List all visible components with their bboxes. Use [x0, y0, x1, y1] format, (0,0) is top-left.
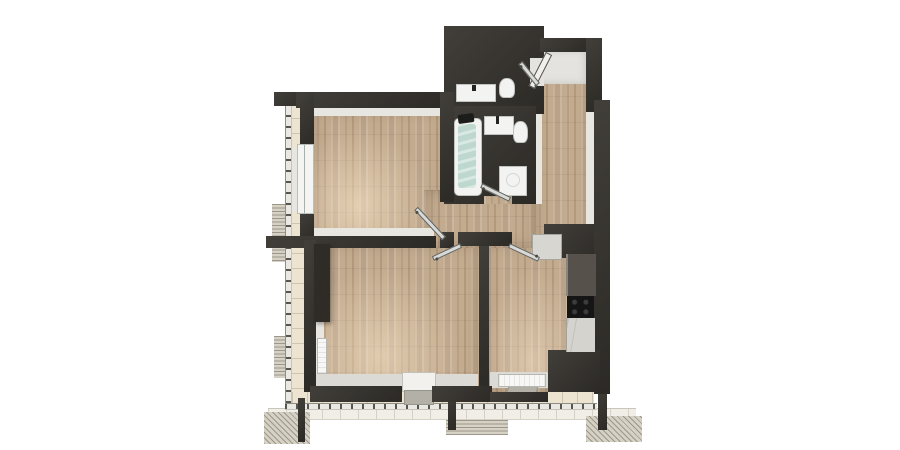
wc-vanity-sink [456, 84, 496, 102]
bathroom-sink-vanity [484, 116, 514, 135]
wall-bedroom-kitchen-divider [479, 246, 489, 392]
wall-hall-tee [458, 232, 512, 246]
kitchen-counter-cabinet [566, 254, 596, 296]
glass-balustrade-left [285, 104, 292, 408]
lining-living-bottom [314, 228, 434, 236]
bathtub-water [458, 124, 476, 188]
lining-living-top [312, 108, 442, 116]
bathroom-toilet [513, 121, 528, 143]
bedroom-wardrobe [314, 244, 330, 322]
lining-bath-right [536, 108, 542, 204]
glass-balustrade-bottom [285, 403, 597, 410]
wall-kitchen-corner-block [548, 350, 600, 392]
wc-toilet [499, 78, 515, 98]
wall-living-top [296, 92, 454, 108]
bathroom-faucet [496, 116, 499, 124]
column-bottom-left [298, 398, 305, 442]
wall-bottom-left-segment [310, 386, 402, 402]
wall-living-left-upper [300, 92, 314, 148]
wall-bottom-kitchen-segment [490, 392, 548, 402]
bedroom-balcony-door-threshold [402, 372, 436, 392]
wall-bottom-center-segment [432, 386, 492, 402]
washing-machine-door [506, 173, 520, 187]
wall-entry-top [540, 38, 592, 52]
bedroom-radiator [317, 338, 327, 374]
wall-room-divider [266, 236, 436, 248]
wc-faucet [472, 85, 476, 91]
living-window [297, 144, 314, 214]
bedroom-door-mat [404, 390, 434, 405]
apartment-floorplan [0, 0, 900, 450]
wall-living-right [440, 92, 454, 202]
column-bottom-right [598, 388, 607, 430]
kitchen-radiator [498, 374, 546, 387]
kitchen-counter-marble [566, 318, 595, 352]
floorplan-canvas [0, 0, 900, 450]
bedroom-floor [310, 242, 482, 392]
facade-pad-bottom-right [586, 416, 642, 442]
kitchen-cooktop [567, 296, 594, 318]
